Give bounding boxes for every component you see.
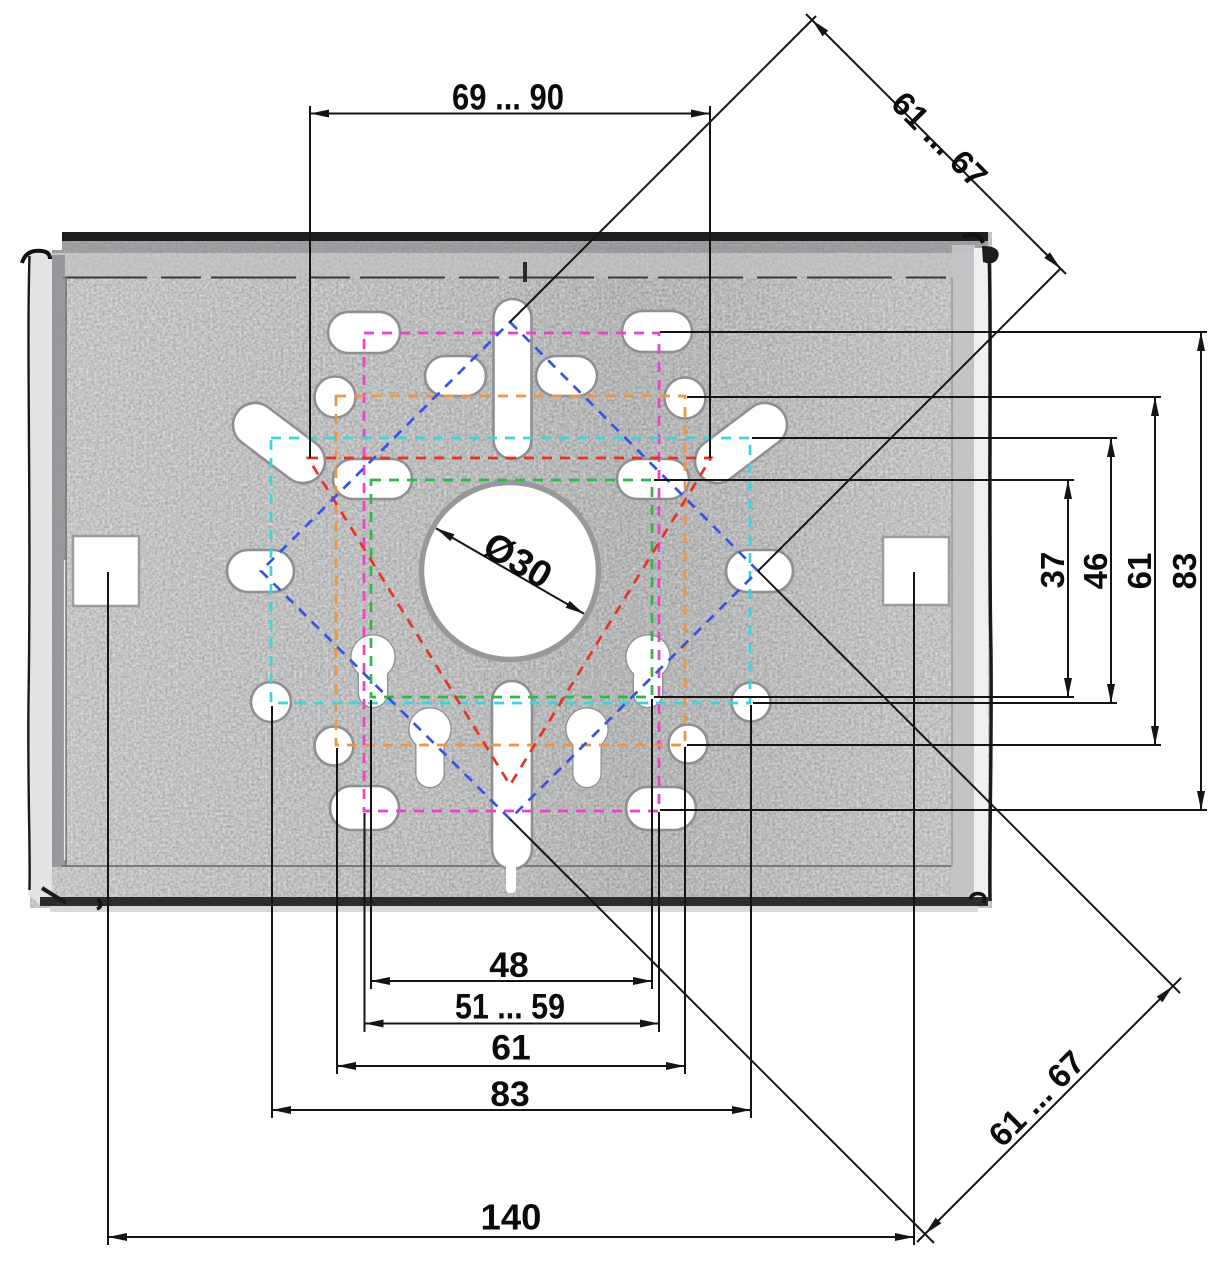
- svg-text:48: 48: [489, 945, 529, 985]
- svg-text:46: 46: [1077, 553, 1114, 590]
- svg-text:61: 61: [1121, 553, 1158, 590]
- svg-text:83: 83: [490, 1074, 530, 1114]
- svg-text:61: 61: [491, 1028, 531, 1068]
- svg-text:51 ... 59: 51 ... 59: [455, 987, 565, 1027]
- svg-text:140: 140: [481, 1197, 542, 1238]
- svg-text:37: 37: [1034, 552, 1071, 589]
- svg-text:69 ... 90: 69 ... 90: [452, 77, 564, 118]
- svg-text:83: 83: [1166, 553, 1203, 590]
